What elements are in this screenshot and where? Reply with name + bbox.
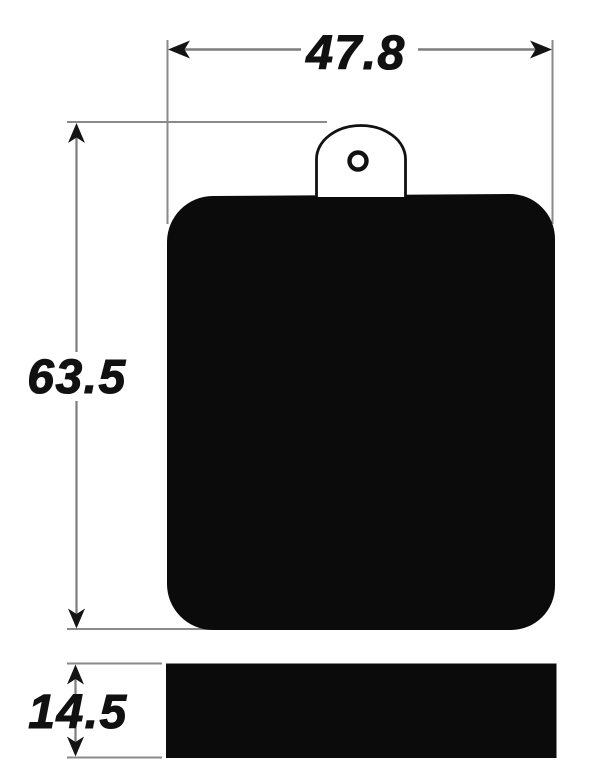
svg-text:47.8: 47.8 — [305, 27, 405, 80]
svg-text:14.5: 14.5 — [28, 686, 127, 739]
svg-text:63.5: 63.5 — [27, 351, 126, 404]
